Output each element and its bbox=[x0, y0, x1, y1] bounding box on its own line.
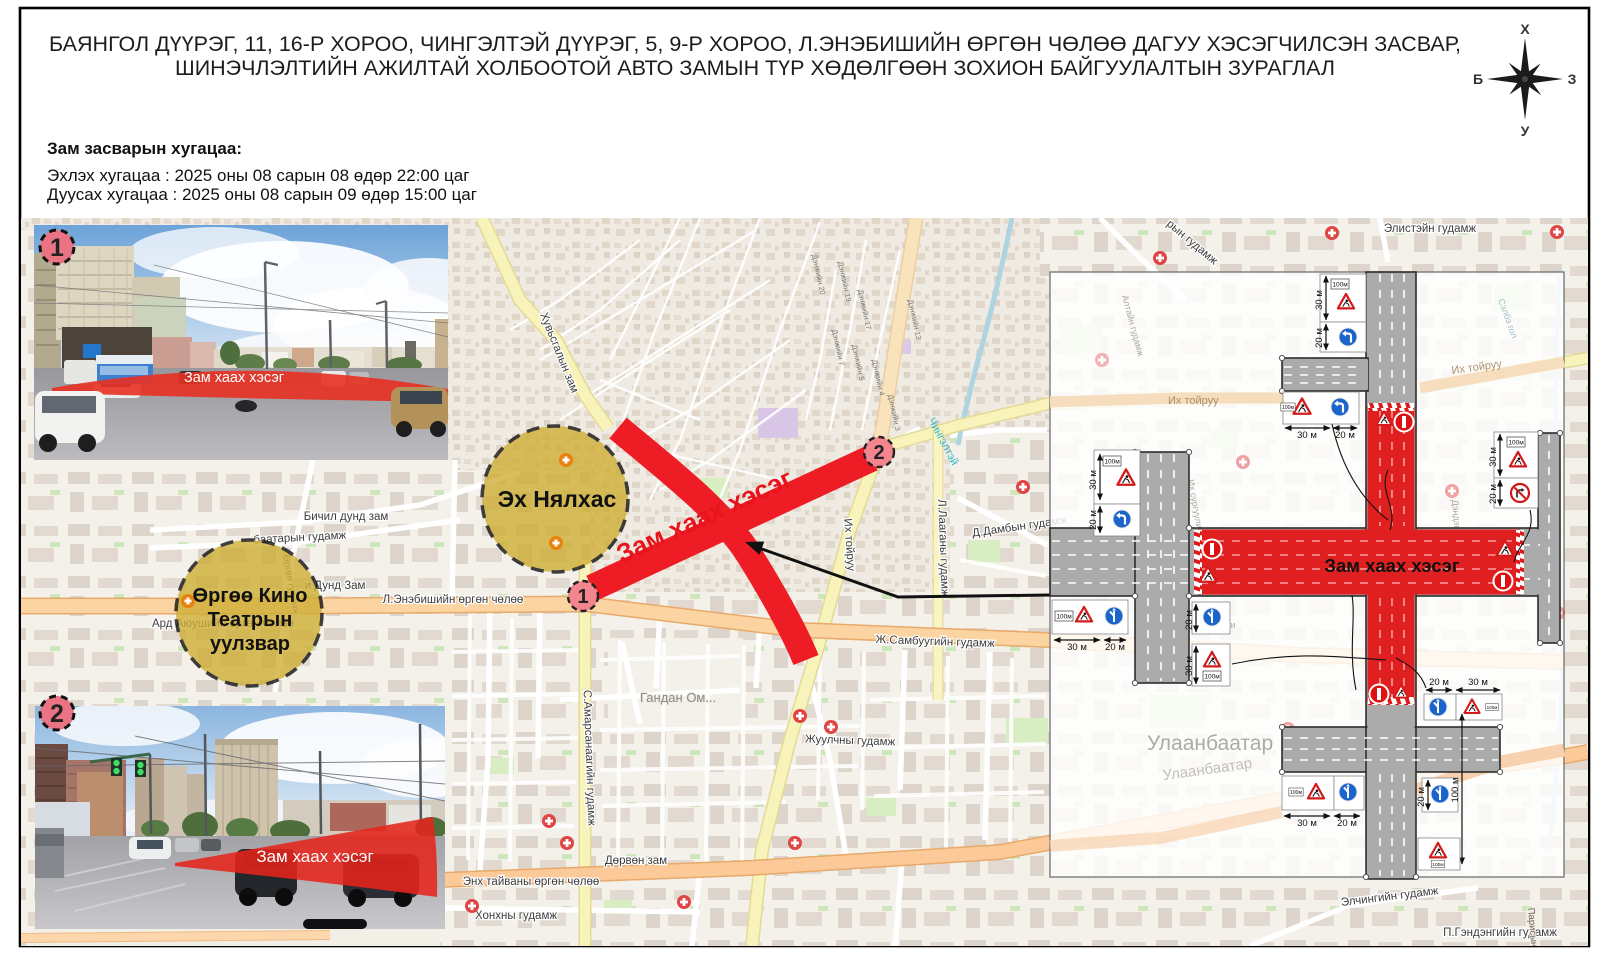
svg-text:Эхлэх хугацаа : 2025 оны 08 са: Эхлэх хугацаа : 2025 оны 08 сарын 08 өдө… bbox=[47, 166, 469, 185]
svg-text:30 м: 30 м bbox=[1314, 290, 1325, 310]
svg-text:30 м: 30 м bbox=[1297, 818, 1317, 829]
svg-text:30 м: 30 м bbox=[1184, 656, 1195, 676]
svg-text:30 м: 30 м bbox=[1088, 470, 1099, 490]
svg-text:Зам хаах хэсэг: Зам хаах хэсэг bbox=[184, 370, 284, 386]
svg-text:20 м: 20 м bbox=[1416, 787, 1427, 807]
svg-text:У: У bbox=[1521, 123, 1530, 139]
svg-text:20 м: 20 м bbox=[1488, 484, 1499, 504]
svg-text:Х: Х bbox=[1520, 21, 1530, 37]
svg-text:БАЯНГОЛ ДҮҮРЭГ, 11, 16-Р ХОРОО: БАЯНГОЛ ДҮҮРЭГ, 11, 16-Р ХОРОО, ЧИНГЭЛТЭ… bbox=[49, 31, 1461, 56]
svg-text:Элистэйн гудамж: Элистэйн гудамж bbox=[1384, 223, 1476, 235]
svg-text:Л.Энэбишийн өргөн чөлөө: Л.Энэбишийн өргөн чөлөө bbox=[383, 594, 524, 606]
svg-text:20 м: 20 м bbox=[1184, 610, 1195, 630]
svg-text:Улаанбаатар: Улаанбаатар bbox=[1147, 732, 1273, 755]
svg-text:1: 1 bbox=[50, 234, 64, 262]
svg-text:Зам хаах хэсэг: Зам хаах хэсэг bbox=[256, 847, 373, 866]
svg-text:ШИНЭЧЛЭЛТИЙН АЖИЛТАЙ ХОЛБООТОЙ: ШИНЭЧЛЭЛТИЙН АЖИЛТАЙ ХОЛБООТОЙ АВТО ЗАМЫ… bbox=[175, 55, 1335, 80]
svg-text:П.Гэндэнгийн гудамж: П.Гэндэнгийн гудамж bbox=[1443, 927, 1557, 939]
svg-text:Хонхны гудамж: Хонхны гудамж bbox=[475, 910, 557, 922]
svg-text:30 м: 30 м bbox=[1468, 677, 1488, 688]
svg-text:Өргөө Кино: Өргөө Кино bbox=[193, 585, 308, 607]
svg-text:1: 1 bbox=[577, 586, 588, 608]
svg-text:Зам засварын хугацаа:: Зам засварын хугацаа: bbox=[47, 139, 242, 158]
svg-text:30 м: 30 м bbox=[1488, 447, 1499, 467]
svg-text:Дуусах хугацаа : 2025 оны 08 с: Дуусах хугацаа : 2025 оны 08 сарын 09 өд… bbox=[47, 185, 477, 204]
svg-text:2: 2 bbox=[50, 700, 64, 728]
svg-text:20 м: 20 м bbox=[1314, 328, 1325, 348]
svg-text:20 м: 20 м bbox=[1337, 818, 1357, 829]
svg-text:2: 2 bbox=[873, 442, 884, 464]
svg-text:Бичил дунд зам: Бичил дунд зам bbox=[304, 511, 389, 523]
svg-text:Б: Б bbox=[1473, 71, 1483, 87]
svg-text:Энх тайваны өргөн чөлөө: Энх тайваны өргөн чөлөө bbox=[463, 876, 600, 888]
svg-text:уулзвар: уулзвар bbox=[210, 633, 290, 655]
svg-text:Зам хаах хэсэг: Зам хаах хэсэг bbox=[1324, 555, 1460, 576]
svg-text:Театрын: Театрын bbox=[208, 609, 293, 631]
svg-text:20 м: 20 м bbox=[1429, 677, 1449, 688]
svg-text:Гандан Ом...: Гандан Ом... bbox=[640, 690, 716, 705]
svg-text:Их тойруу: Их тойруу bbox=[1168, 395, 1219, 407]
svg-text:30 м: 30 м bbox=[1067, 642, 1087, 653]
svg-text:З: З bbox=[1568, 71, 1577, 87]
svg-text:20 м: 20 м bbox=[1335, 430, 1355, 441]
svg-text:Эх Нялхас: Эх Нялхас bbox=[498, 486, 617, 512]
svg-text:100 м: 100 м bbox=[1450, 777, 1461, 802]
svg-text:20 м: 20 м bbox=[1088, 510, 1099, 530]
svg-text:30 м: 30 м bbox=[1297, 430, 1317, 441]
svg-text:Дөрвөн зам: Дөрвөн зам bbox=[605, 855, 667, 867]
svg-text:20 м: 20 м bbox=[1105, 642, 1125, 653]
